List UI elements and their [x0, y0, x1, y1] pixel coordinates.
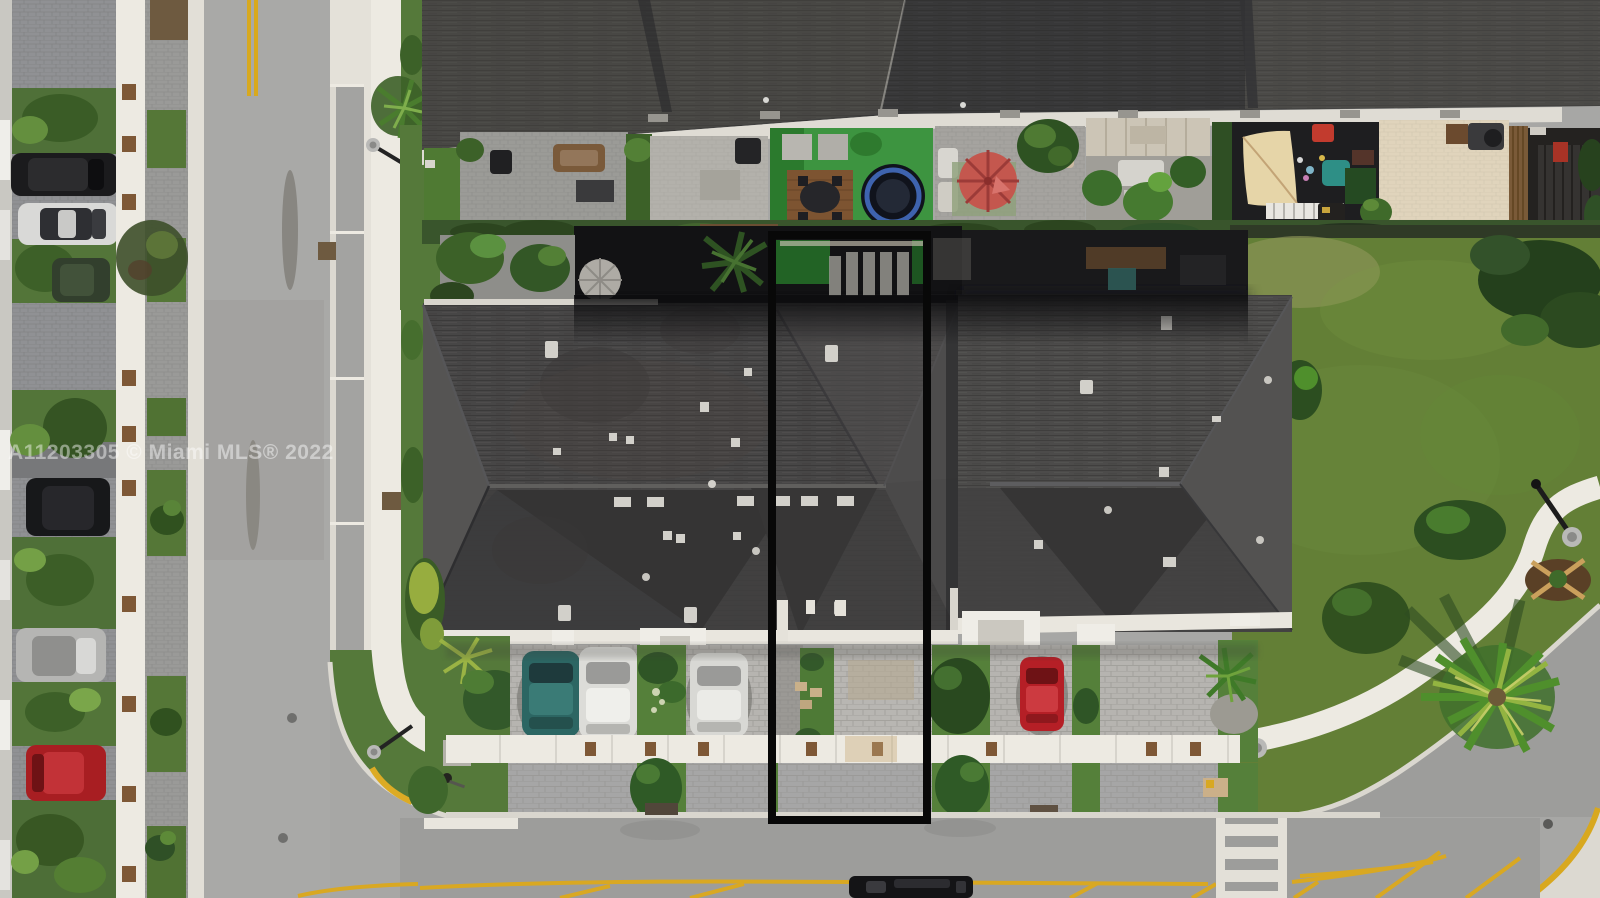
svg-text:A11203305 © Miami MLS® 2022: A11203305 © Miami MLS® 2022 — [8, 441, 334, 464]
